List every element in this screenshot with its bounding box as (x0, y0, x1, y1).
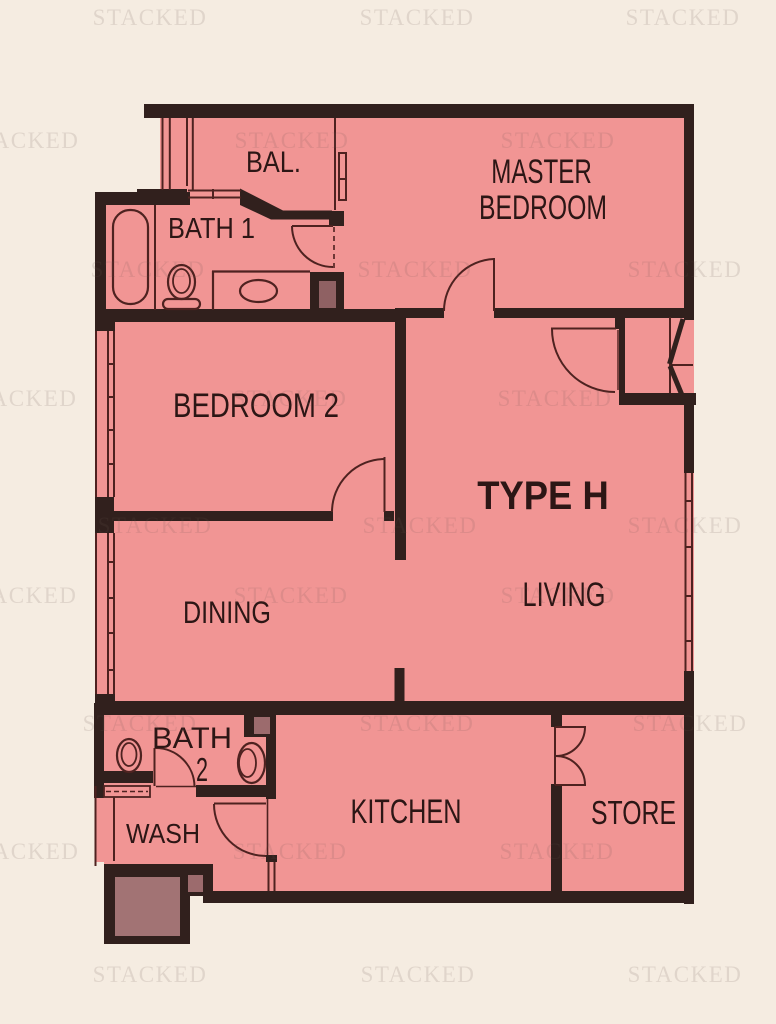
svg-text:STACKED: STACKED (501, 128, 616, 153)
svg-text:STACKED: STACKED (0, 386, 77, 411)
svg-text:WASH: WASH (126, 818, 200, 849)
svg-text:STACKED: STACKED (91, 257, 206, 282)
svg-text:2: 2 (196, 751, 208, 788)
svg-text:STACKED: STACKED (83, 711, 198, 736)
svg-text:TYPE H: TYPE H (477, 473, 608, 518)
svg-text:STACKED: STACKED (233, 386, 348, 411)
svg-text:STACKED: STACKED (498, 386, 613, 411)
svg-text:STACKED: STACKED (233, 839, 348, 864)
svg-text:STACKED: STACKED (93, 962, 208, 987)
svg-text:STACKED: STACKED (0, 839, 79, 864)
svg-text:STACKED: STACKED (500, 839, 615, 864)
svg-text:STACKED: STACKED (628, 513, 743, 538)
svg-text:MASTER: MASTER (491, 153, 592, 191)
svg-text:STACKED: STACKED (626, 5, 741, 30)
svg-text:STACKED: STACKED (235, 128, 350, 153)
svg-text:STACKED: STACKED (501, 583, 616, 608)
svg-text:STACKED: STACKED (628, 257, 743, 282)
svg-text:STACKED: STACKED (98, 513, 213, 538)
svg-text:BEDROOM: BEDROOM (479, 189, 607, 227)
svg-text:STACKED: STACKED (0, 583, 77, 608)
svg-text:STACKED: STACKED (628, 962, 743, 987)
svg-text:STORE: STORE (591, 796, 676, 832)
svg-text:STACKED: STACKED (358, 257, 473, 282)
svg-text:STACKED: STACKED (234, 583, 349, 608)
svg-text:STACKED: STACKED (360, 711, 475, 736)
svg-text:STACKED: STACKED (633, 711, 748, 736)
svg-text:STACKED: STACKED (360, 5, 475, 30)
svg-text:STACKED: STACKED (361, 962, 476, 987)
svg-text:STACKED: STACKED (0, 128, 79, 153)
svg-text:BATH 1: BATH 1 (168, 211, 255, 244)
svg-text:STACKED: STACKED (93, 5, 208, 30)
svg-text:STACKED: STACKED (363, 513, 478, 538)
svg-text:KITCHEN: KITCHEN (351, 793, 462, 831)
